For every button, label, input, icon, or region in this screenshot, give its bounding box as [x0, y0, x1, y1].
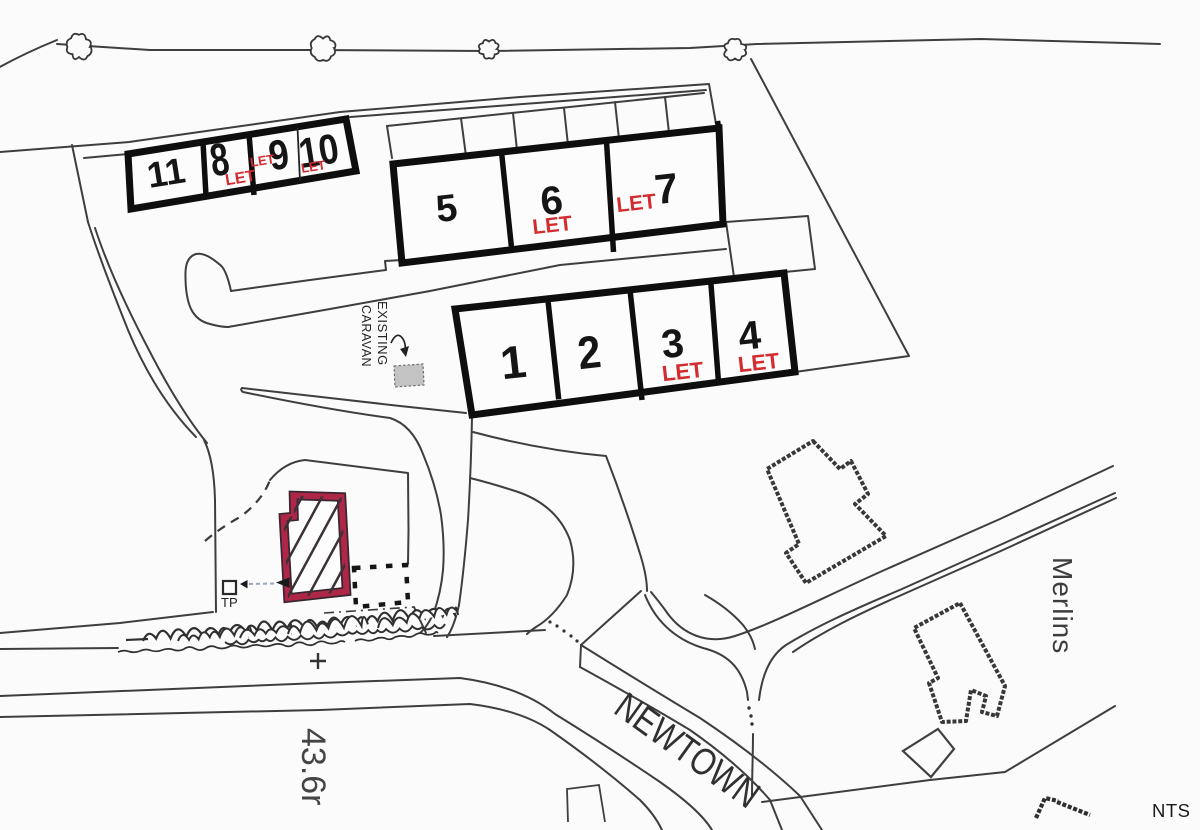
- svg-text:TP: TP: [221, 595, 238, 610]
- svg-text:LET: LET: [531, 212, 573, 239]
- svg-text:LET: LET: [615, 190, 657, 217]
- svg-text:Merlins: Merlins: [1047, 557, 1078, 654]
- svg-text:LET: LET: [737, 348, 782, 377]
- svg-text:CARAVAN: CARAVAN: [359, 305, 373, 367]
- svg-text:EXISTING: EXISTING: [375, 301, 390, 366]
- svg-text:NTS: NTS: [1152, 800, 1191, 821]
- svg-text:43.6r: 43.6r: [294, 728, 332, 806]
- svg-text:11: 11: [144, 149, 188, 195]
- svg-text:LET: LET: [661, 357, 706, 386]
